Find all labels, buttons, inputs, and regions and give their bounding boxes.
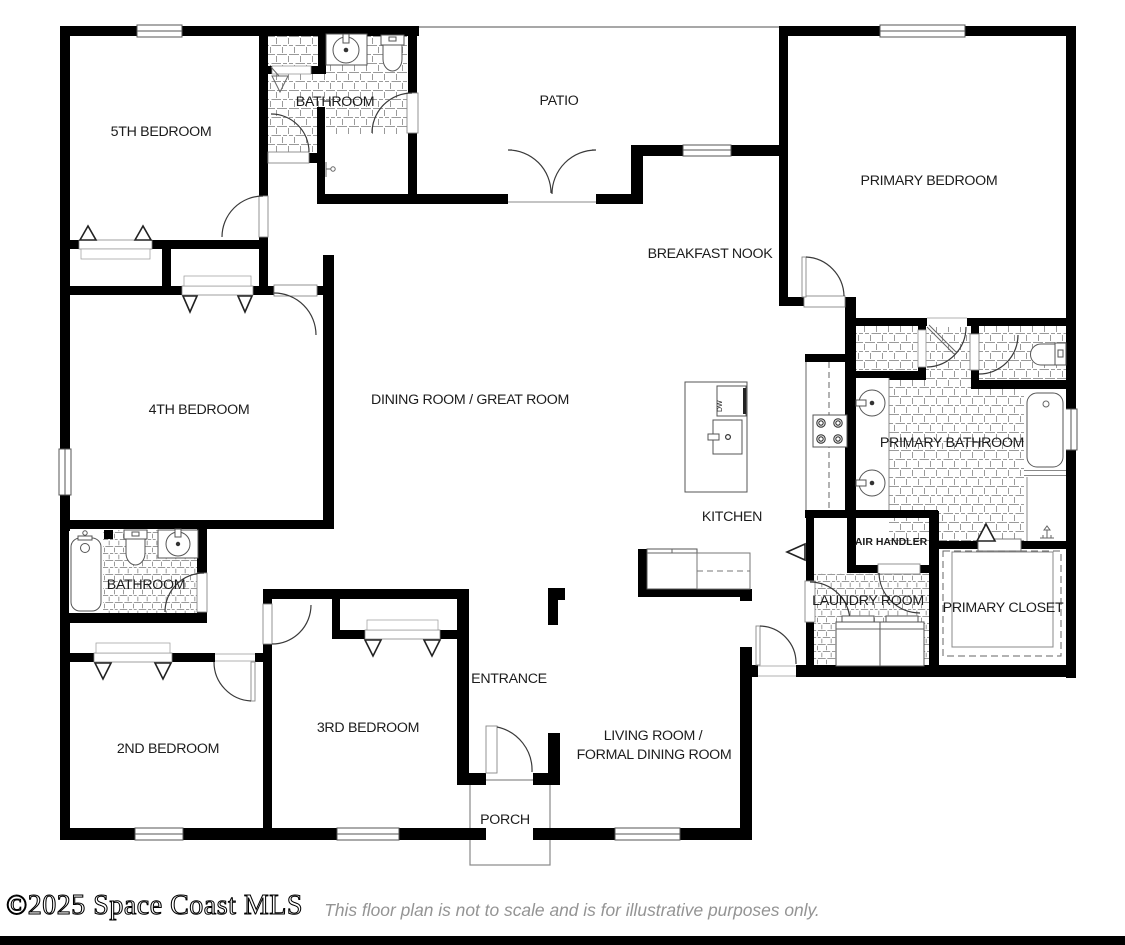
svg-text:ENTRANCE: ENTRANCE (471, 671, 547, 687)
svg-text:AIR HANDLER: AIR HANDLER (855, 536, 928, 548)
svg-text:BREAKFAST NOOK: BREAKFAST NOOK (648, 246, 774, 262)
svg-text:DINING ROOM / GREAT ROOM: DINING ROOM / GREAT ROOM (371, 392, 569, 408)
svg-text:PATIO: PATIO (540, 93, 579, 109)
svg-text:LAUNDRY ROOM: LAUNDRY ROOM (812, 593, 924, 609)
svg-text:5TH BEDROOM: 5TH BEDROOM (111, 124, 212, 140)
svg-text:BATHROOM: BATHROOM (296, 94, 375, 110)
svg-text:2ND BEDROOM: 2ND BEDROOM (117, 741, 219, 757)
svg-text:This floor plan is not to scal: This floor plan is not to scale and is f… (324, 900, 820, 920)
svg-text:PRIMARY BATHROOM: PRIMARY BATHROOM (880, 435, 1024, 451)
svg-text:3RD BEDROOM: 3RD BEDROOM (317, 720, 419, 736)
svg-text:BATHROOM: BATHROOM (107, 577, 186, 593)
svg-text:PRIMARY BEDROOM: PRIMARY BEDROOM (861, 173, 998, 189)
svg-text:DW: DW (717, 400, 724, 412)
svg-text:©2025 Space Coast MLS: ©2025 Space Coast MLS (6, 890, 303, 921)
svg-text:FORMAL DINING ROOM: FORMAL DINING ROOM (577, 747, 732, 763)
svg-text:LIVING ROOM /: LIVING ROOM / (604, 728, 703, 744)
svg-text:PRIMARY CLOSET: PRIMARY CLOSET (943, 600, 1064, 616)
svg-text:PORCH: PORCH (480, 812, 530, 828)
svg-text:4TH BEDROOM: 4TH BEDROOM (149, 402, 250, 418)
svg-text:KITCHEN: KITCHEN (702, 509, 762, 525)
